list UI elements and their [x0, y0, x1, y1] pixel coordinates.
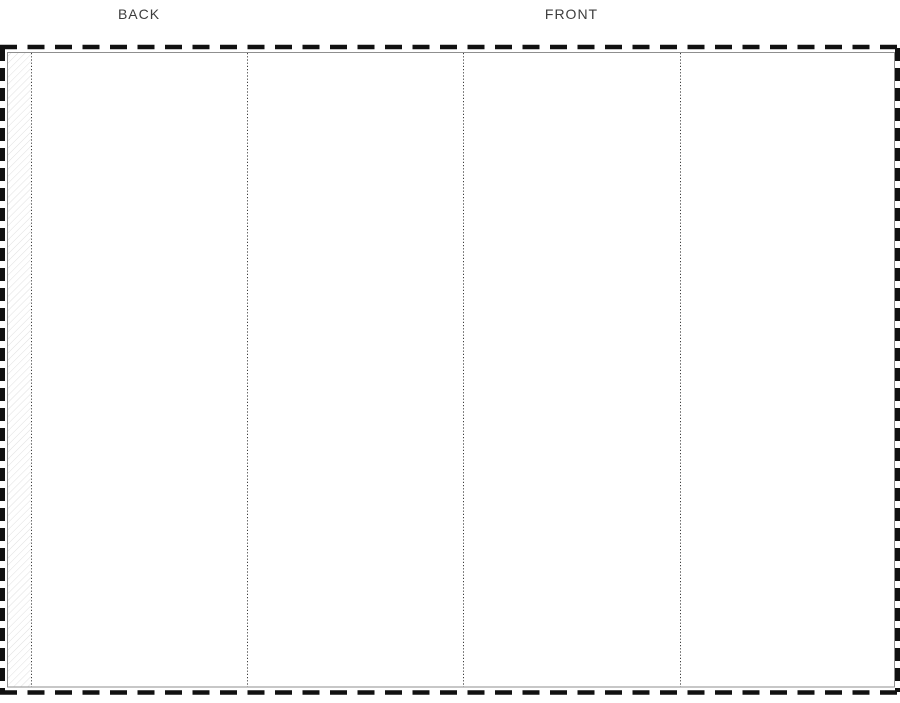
right-side-panel — [681, 53, 894, 687]
front-panel — [464, 53, 680, 687]
dieline-drawing — [0, 0, 900, 703]
left-side-panel — [248, 53, 463, 687]
dieline-canvas: BACK FRONT — [0, 0, 900, 703]
back-panel — [32, 53, 247, 687]
edge-line — [8, 53, 895, 688]
glue-flap-panel — [8, 53, 31, 687]
